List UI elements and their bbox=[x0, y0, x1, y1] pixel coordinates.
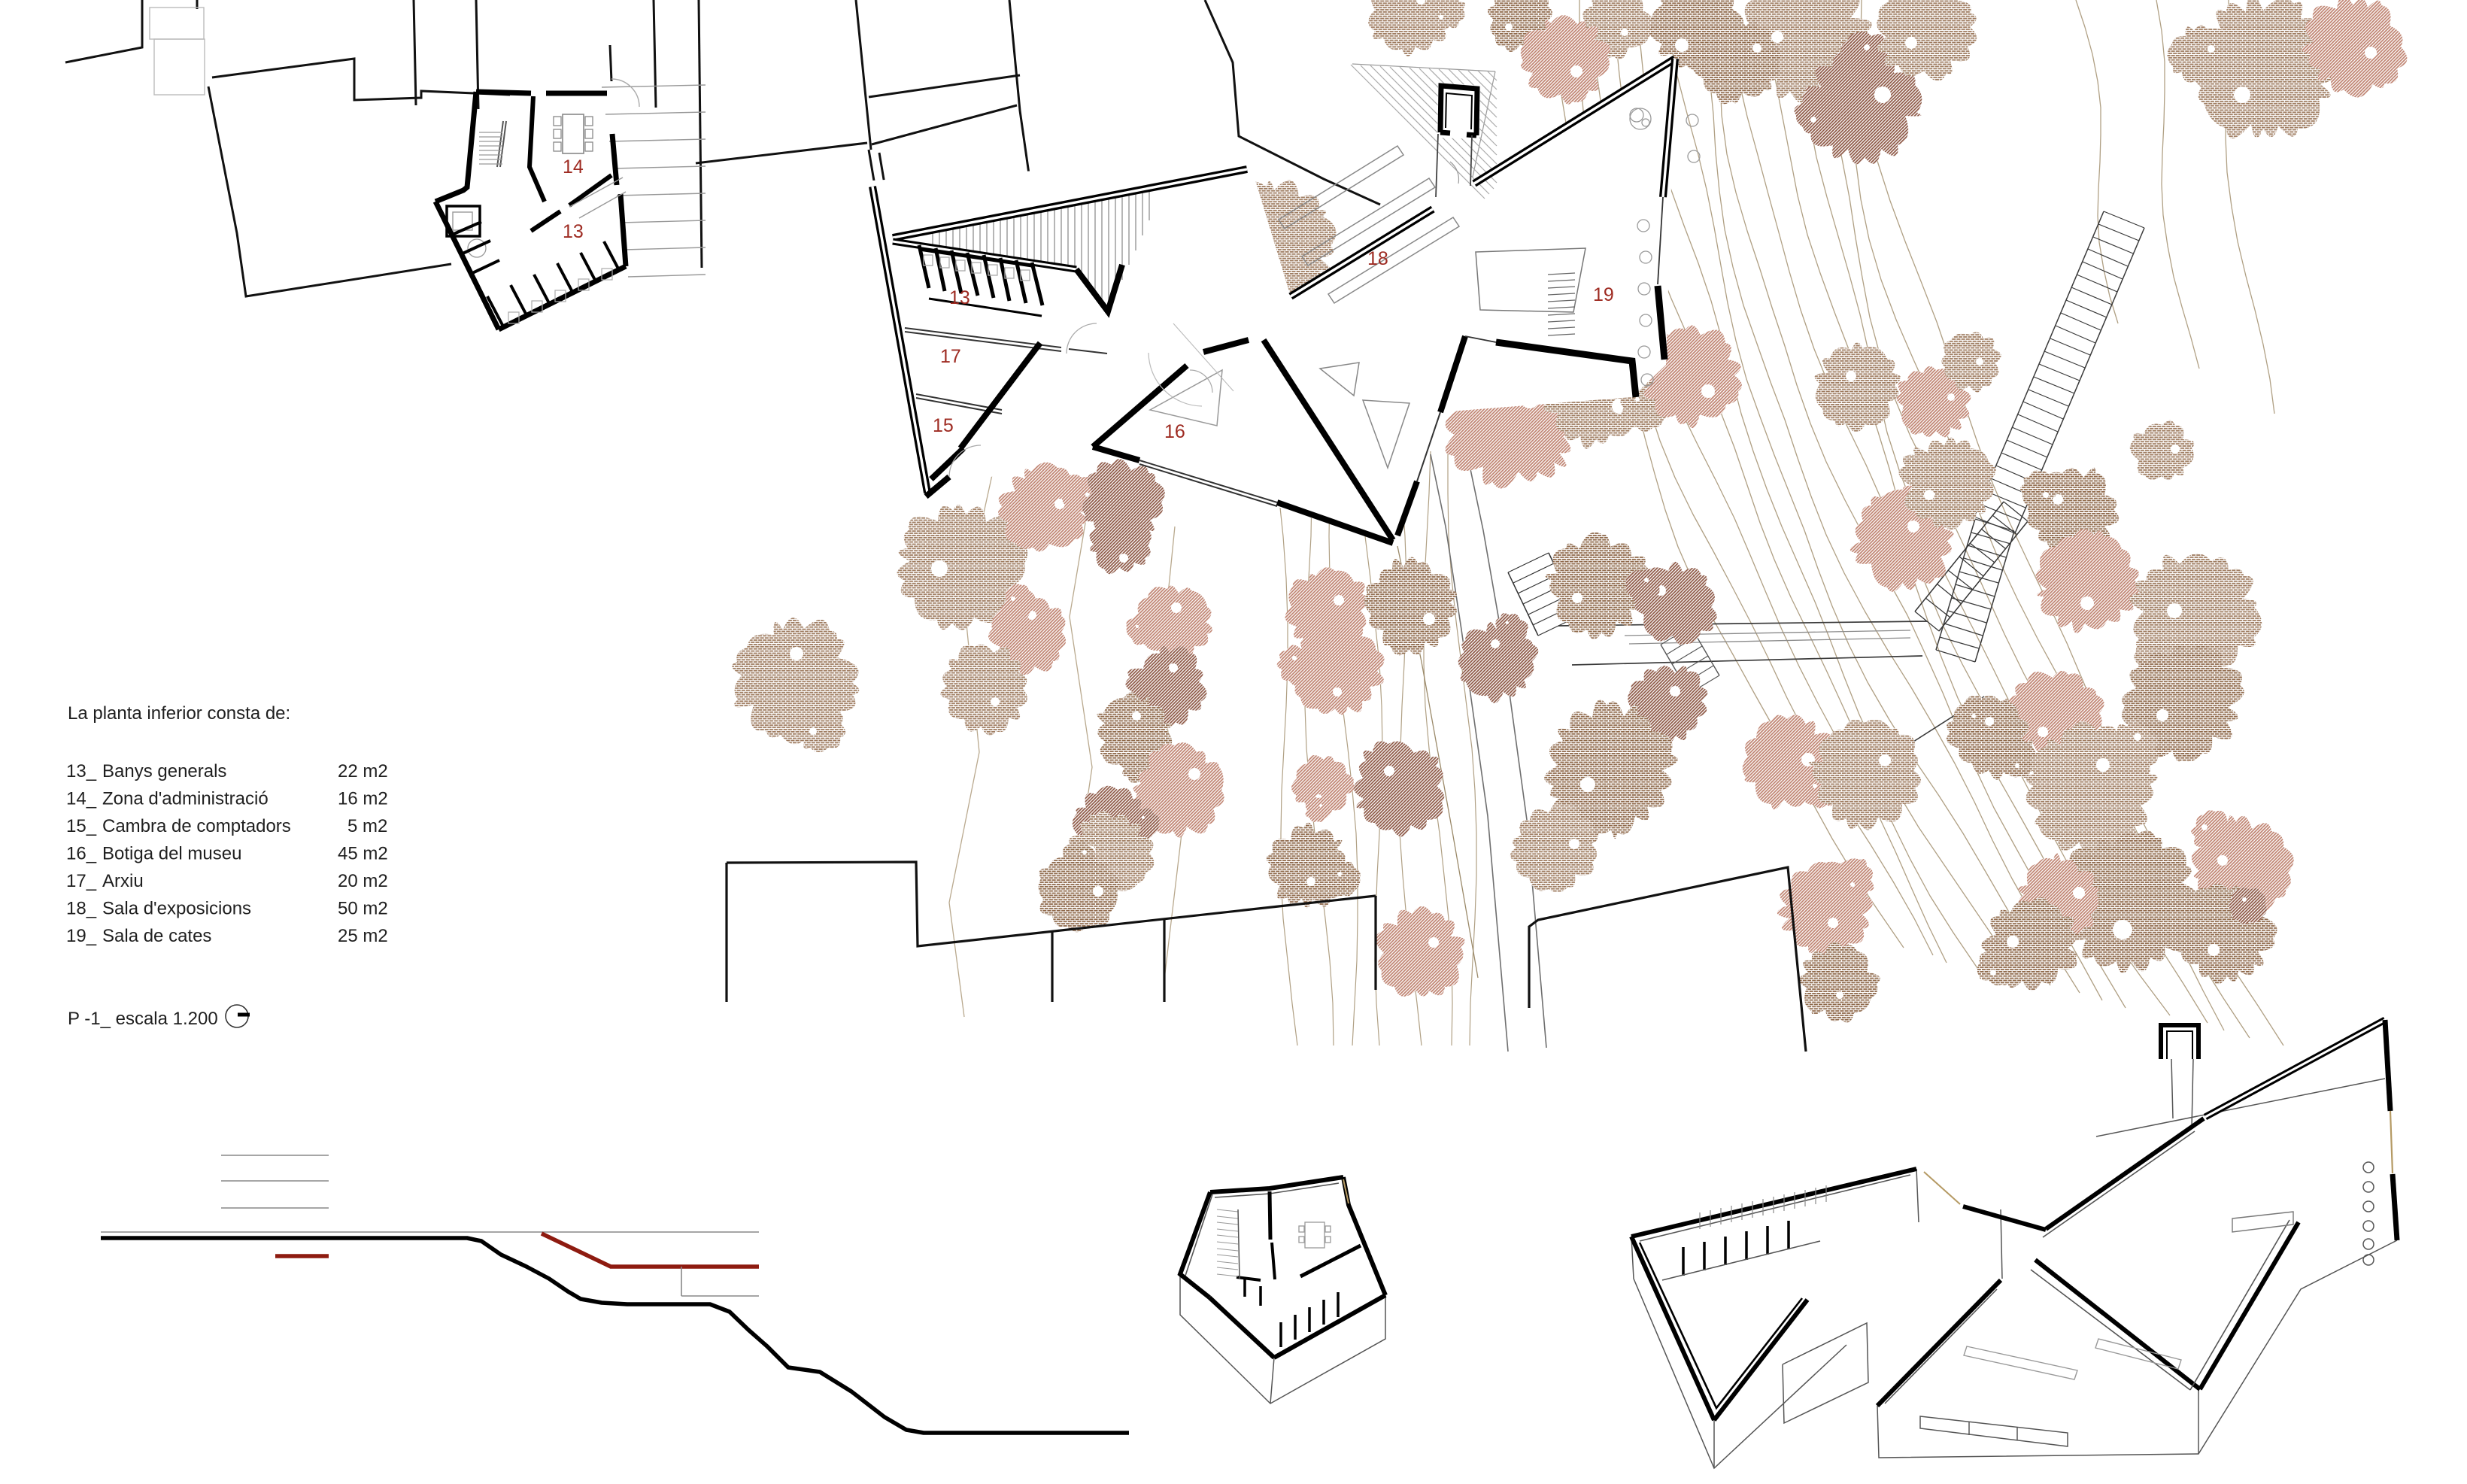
svg-text:18_: 18_ bbox=[66, 899, 97, 919]
svg-text:15_: 15_ bbox=[66, 816, 97, 836]
svg-text:18: 18 bbox=[1367, 248, 1388, 269]
svg-text:Arxiu: Arxiu bbox=[102, 871, 144, 891]
svg-text:45 m2: 45 m2 bbox=[338, 844, 388, 864]
svg-text:5 m2: 5 m2 bbox=[347, 816, 387, 836]
svg-text:13_: 13_ bbox=[66, 761, 97, 781]
svg-text:17_: 17_ bbox=[66, 871, 97, 891]
svg-text:13: 13 bbox=[949, 287, 970, 308]
svg-text:16 m2: 16 m2 bbox=[338, 789, 388, 809]
svg-text:16: 16 bbox=[1164, 421, 1185, 442]
svg-text:14_: 14_ bbox=[66, 789, 97, 809]
svg-text:20 m2: 20 m2 bbox=[338, 871, 388, 891]
svg-text:22 m2: 22 m2 bbox=[338, 761, 388, 781]
svg-text:50 m2: 50 m2 bbox=[338, 899, 388, 919]
svg-text:14: 14 bbox=[563, 156, 584, 178]
svg-text:13: 13 bbox=[563, 221, 584, 242]
svg-text:16_: 16_ bbox=[66, 844, 97, 864]
svg-text:19_: 19_ bbox=[66, 926, 97, 946]
svg-text:Botiga del museu: Botiga del museu bbox=[102, 844, 241, 864]
svg-text:Zona d'administració: Zona d'administració bbox=[102, 789, 269, 809]
svg-text:Sala d'exposicions: Sala d'exposicions bbox=[102, 899, 251, 919]
svg-text:17: 17 bbox=[940, 346, 961, 367]
svg-text:25 m2: 25 m2 bbox=[338, 926, 388, 946]
svg-text:P -1_ escala 1.200: P -1_ escala 1.200 bbox=[68, 1009, 218, 1029]
svg-text:Banys generals: Banys generals bbox=[102, 761, 226, 781]
svg-text:Sala de cates: Sala de cates bbox=[102, 926, 211, 946]
svg-text:15: 15 bbox=[933, 415, 954, 436]
svg-text:Cambra de comptadors: Cambra de comptadors bbox=[102, 816, 291, 836]
svg-text:La planta inferior consta de:: La planta inferior consta de: bbox=[68, 703, 290, 724]
svg-text:19: 19 bbox=[1593, 284, 1614, 305]
